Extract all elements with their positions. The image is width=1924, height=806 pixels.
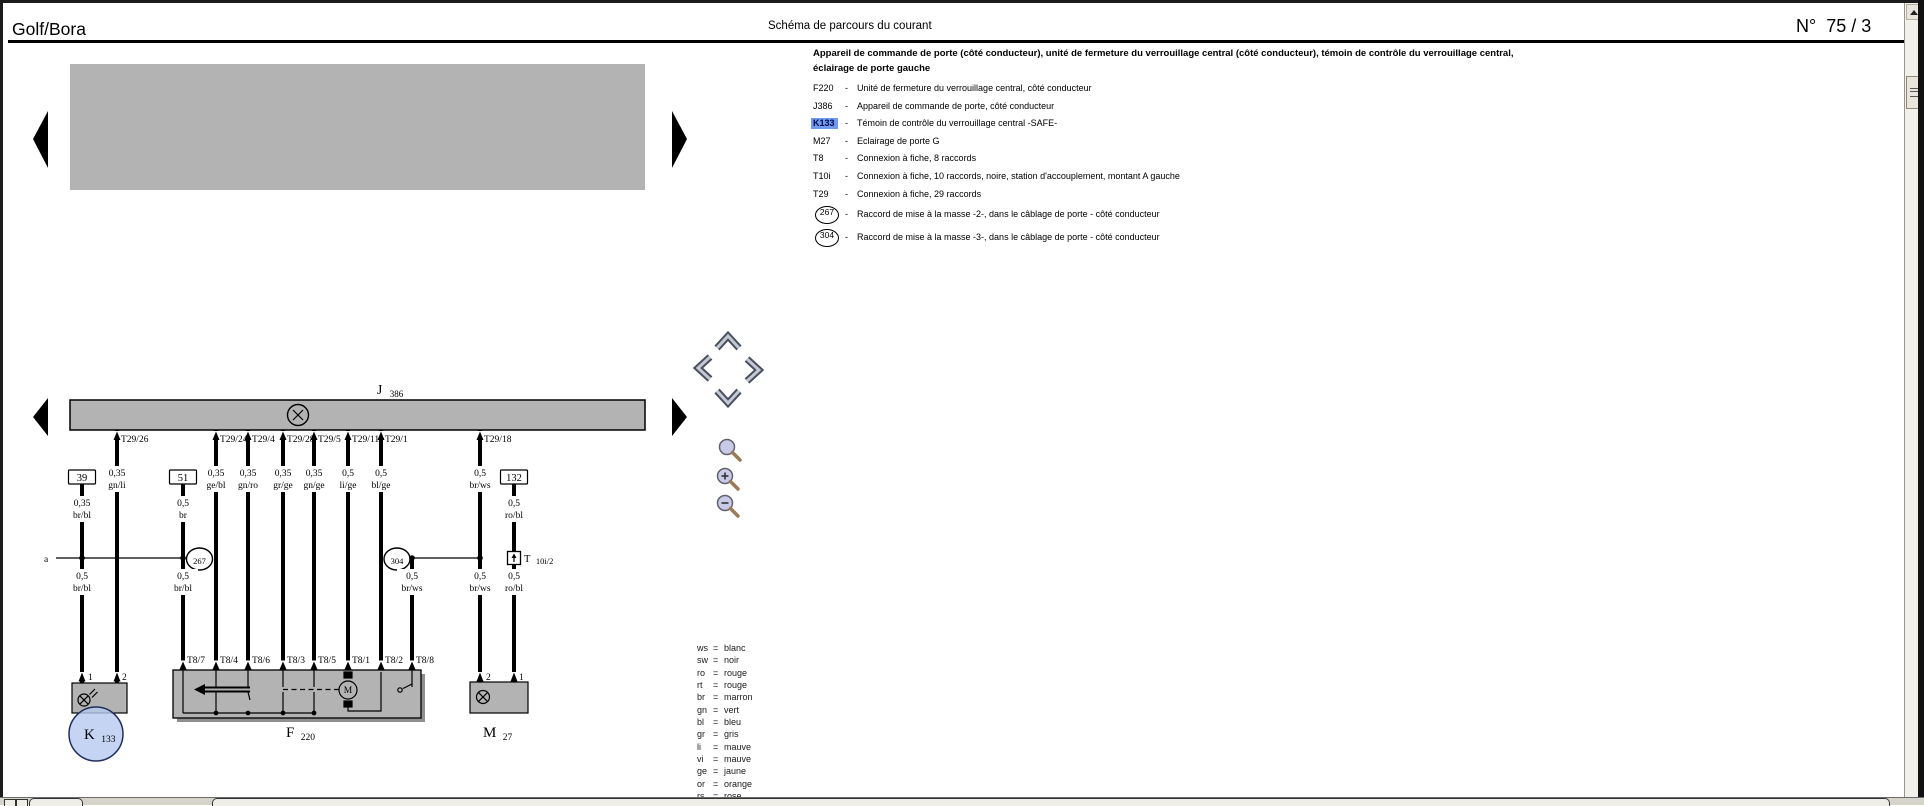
ground-point-icon: 267 <box>815 206 839 224</box>
legend-row: M27 - Eclairage de porte G <box>813 133 1903 151</box>
pin-label: T29/24 <box>220 435 248 445</box>
color-row: sw=noir <box>697 654 753 666</box>
pin-label: 2 <box>122 673 127 683</box>
color-name: bleu <box>724 716 741 728</box>
legend-row: J386 - Appareil de commande de porte, cô… <box>813 98 1903 116</box>
legend-row-selected: K133 - Témoin de contrôle du verrouillag… <box>813 115 1903 133</box>
ground-row: a 267 304 T 10i/2 <box>44 548 553 570</box>
legend-row-ground: 304 - Raccord de mise à la masse -3-, da… <box>813 226 1903 249</box>
j386-label: J 386 <box>377 381 404 399</box>
wiring-diagram-canvas: J 386 T29/26 T29/24 T29/4 <box>0 0 760 804</box>
legend-title: Appareil de commande de porte (côté cond… <box>813 46 1903 76</box>
color-row: vi=mauve <box>697 753 753 765</box>
zoom-window-button[interactable] <box>720 440 741 461</box>
legend-row: T10i - Connexion à fiche, 10 raccords, n… <box>813 168 1903 186</box>
pin-label: T8/3 <box>287 656 305 666</box>
pan-right-button[interactable] <box>747 359 759 381</box>
track-ref: 51 <box>178 473 189 484</box>
pin-label: T8/5 <box>318 656 336 666</box>
ground-point-304: 304 <box>391 556 405 566</box>
pin-label: T29/28 <box>287 435 315 445</box>
pin-label: T29/1 <box>385 435 408 445</box>
pin-label: 1 <box>519 673 524 683</box>
color-name: gris <box>724 728 739 740</box>
scrollbar-grip <box>1910 88 1918 97</box>
bottom-tab-large[interactable] <box>212 798 1890 806</box>
motor-icon-letter: M <box>344 686 353 696</box>
component-desc: Connexion à fiche, 29 raccords <box>857 186 981 204</box>
color-code-legend: ws=blanc sw=noir ro=rouge rt=rouge br=ma… <box>697 642 753 802</box>
pin-label: T8/2 <box>385 656 403 666</box>
component-desc: Raccord de mise à la masse -2-, dans le … <box>857 206 1160 224</box>
page-next-arrow-bar[interactable] <box>672 398 687 436</box>
color-row: bl=bleu <box>697 716 753 728</box>
wire-labels-ground: 0,5br/bl 0,5br/bl 0,5br/ws 0,5br/ws 0,5r… <box>67 569 529 595</box>
color-row: gr=gris <box>697 728 753 740</box>
f220-box <box>173 670 425 722</box>
component-code[interactable]: T10i <box>813 168 845 186</box>
component-desc: Connexion à fiche, 8 raccords <box>857 150 976 168</box>
component-code[interactable]: T8 <box>813 150 845 168</box>
bottom-widget[interactable] <box>4 799 16 806</box>
pin-label: T8/4 <box>220 656 238 666</box>
color-name: jaune <box>724 765 746 777</box>
color-row: br=marron <box>697 691 753 703</box>
color-row: ws=blanc <box>697 642 753 654</box>
component-code[interactable]: T29 <box>813 186 845 204</box>
ground-point-267: 267 <box>193 556 206 566</box>
scroll-up-icon <box>1910 10 1918 15</box>
color-name: vert <box>724 704 739 716</box>
legend-row: T8 - Connexion à fiche, 8 raccords <box>813 150 1903 168</box>
document-title: Schéma de parcours du courant <box>768 20 932 32</box>
component-code[interactable]: M27 <box>813 133 845 151</box>
pin-label: T29/11 <box>352 435 379 445</box>
zoom-in-button[interactable] <box>718 469 739 490</box>
bottom-widget[interactable] <box>16 799 28 806</box>
pin-label: T8/8 <box>416 656 434 666</box>
viewer-controls <box>690 325 770 525</box>
color-row: li=mauve <box>697 741 753 753</box>
track-ref: 132 <box>506 473 522 484</box>
pan-up-button[interactable] <box>717 336 739 348</box>
component-code[interactable]: F220 <box>813 80 845 98</box>
component-desc: Témoin de contrôle du verrouillage centr… <box>857 115 1057 133</box>
page-prev-arrow-bar[interactable] <box>33 398 48 436</box>
page-number: N°75 / 3 <box>1796 16 1871 37</box>
zoom-out-button[interactable] <box>718 496 739 517</box>
track-letter: a <box>44 555 49 565</box>
page-prev-arrow-top[interactable] <box>33 111 48 168</box>
color-name: rouge <box>724 679 747 691</box>
page-number-label: N° <box>1796 16 1816 36</box>
component-code[interactable]: J386 <box>813 98 845 116</box>
f220-label: F 220 <box>286 724 315 743</box>
legend-row-ground: 267 - Raccord de mise à la masse -2-, da… <box>813 203 1903 226</box>
bottom-tab-small[interactable] <box>29 798 83 806</box>
pin-label: T29/26 <box>121 435 149 445</box>
pin-label: T8/6 <box>252 656 270 666</box>
wire-labels-ref: 0,35br/bl 0,5br 0,5ro/bl <box>67 496 529 522</box>
pin-label: T29/5 <box>318 435 341 445</box>
component-code-highlighted[interactable]: K133 <box>811 118 838 129</box>
window-border-right <box>1918 0 1924 804</box>
wire-labels-top: 0,35gn/li 0,35ge/bl 0,35gn/ro 0,35gr/ge … <box>102 466 495 492</box>
component-desc: Connexion à fiche, 10 raccords, noire, s… <box>857 168 1180 186</box>
color-name: mauve <box>724 741 751 753</box>
color-name: mauve <box>724 753 751 765</box>
color-row: or=orange <box>697 778 753 790</box>
pin-label: T29/18 <box>484 435 512 445</box>
component-desc: Raccord de mise à la masse -3-, dans le … <box>857 229 1160 247</box>
color-name: rouge <box>724 667 747 679</box>
component-desc: Eclairage de porte G <box>857 133 940 151</box>
color-name: blanc <box>724 642 746 654</box>
legend-row: F220 - Unité de fermeture du verrouillag… <box>813 80 1903 98</box>
color-row: rt=rouge <box>697 679 753 691</box>
pin-label: T8/1 <box>352 656 370 666</box>
legend-row: T29 - Connexion à fiche, 29 raccords <box>813 186 1903 204</box>
page-next-arrow-top[interactable] <box>672 111 687 168</box>
color-name: marron <box>724 691 753 703</box>
page-number-value: 75 / 3 <box>1826 16 1871 36</box>
color-name: noir <box>724 654 739 666</box>
pin-label: T8/7 <box>187 656 205 666</box>
track-ref: 39 <box>77 473 88 484</box>
ground-point-icon: 304 <box>815 229 839 247</box>
pin-label: 2 <box>486 673 491 683</box>
legend-panel: Appareil de commande de porte (côté cond… <box>813 46 1903 249</box>
pan-left-button[interactable] <box>698 357 710 379</box>
pin-label: T29/4 <box>252 435 275 445</box>
j386-control-unit-bar <box>70 400 645 430</box>
color-row: ge=jaune <box>697 765 753 777</box>
t10i-connector-label: T 10i/2 <box>524 549 553 566</box>
color-name: orange <box>724 778 752 790</box>
color-row: gn=vert <box>697 704 753 716</box>
m27-box <box>470 682 528 713</box>
pan-down-button[interactable] <box>717 391 739 403</box>
pin-label: 1 <box>88 673 93 683</box>
color-row: ro=rouge <box>697 667 753 679</box>
component-desc: Unité de fermeture du verrouillage centr… <box>857 80 1092 98</box>
component-desc: Appareil de commande de porte, côté cond… <box>857 98 1054 116</box>
m27-label: M 27 <box>483 724 513 743</box>
diagram-top-bar <box>70 64 645 190</box>
